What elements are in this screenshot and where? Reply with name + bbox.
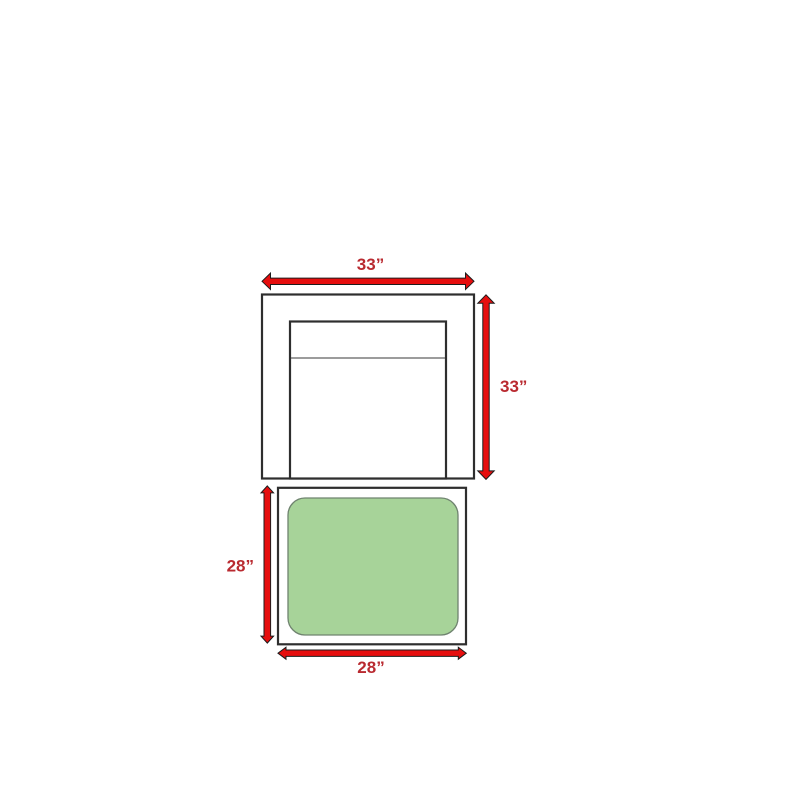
svg-text:28”: 28” [357, 658, 384, 677]
svg-text:28”: 28” [227, 557, 254, 576]
svg-text:33”: 33” [357, 255, 384, 274]
svg-text:33”: 33” [500, 377, 527, 396]
